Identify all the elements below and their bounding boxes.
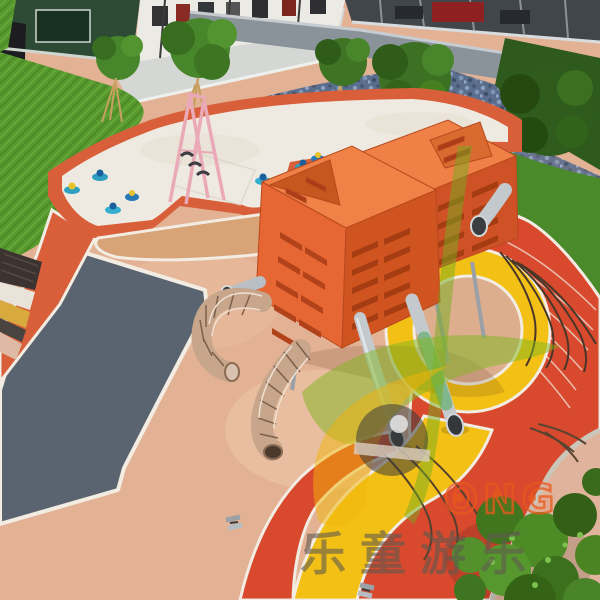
storefront-red-sign xyxy=(432,2,484,22)
watermark-cjk-text: 乐童游乐 xyxy=(300,527,540,581)
blackboard xyxy=(36,10,90,42)
tunnel-mouth xyxy=(264,445,282,459)
logo-letter-dot xyxy=(528,494,536,502)
slide-mouth xyxy=(471,216,487,236)
playground-aerial-photo: ONG 乐童游乐 xyxy=(0,0,600,600)
logo-disc-dot xyxy=(390,415,408,433)
tunnel-mouth xyxy=(225,363,239,381)
logo-disc xyxy=(356,404,428,476)
logo-letter-dot xyxy=(493,490,501,498)
photo-canvas: ONG 乐童游乐 xyxy=(0,0,600,600)
logo-letter-dot xyxy=(454,493,464,503)
